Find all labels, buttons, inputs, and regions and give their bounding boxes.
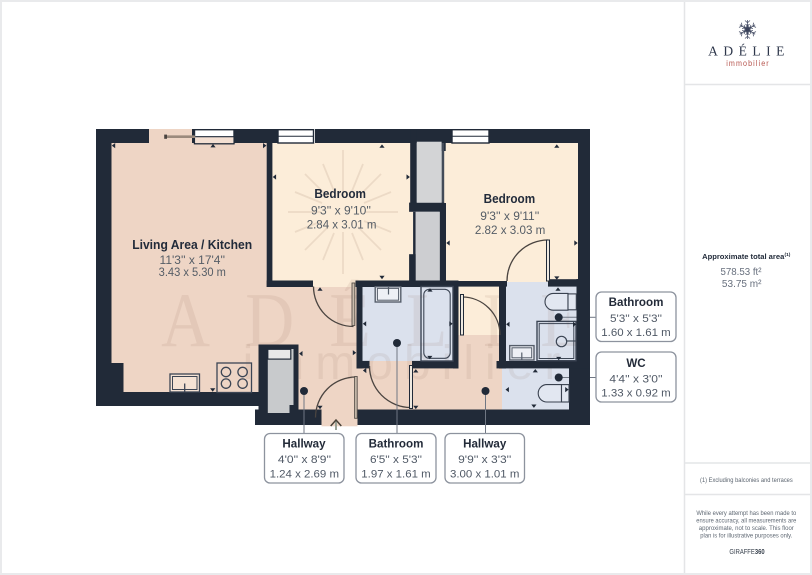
svg-text:Bathroom: Bathroom <box>609 296 664 309</box>
svg-text:3.00 x 1.01 m: 3.00 x 1.01 m <box>450 468 519 480</box>
svg-text:2.82 x 3.03 m: 2.82 x 3.03 m <box>475 224 546 237</box>
svg-text:4'4'' x 3'0'': 4'4'' x 3'0'' <box>609 373 662 385</box>
svg-text:Bedroom: Bedroom <box>314 186 366 201</box>
svg-text:9'3'' x 9'10'': 9'3'' x 9'10'' <box>311 204 371 217</box>
svg-text:GIRAFFE360: GIRAFFE360 <box>729 547 764 556</box>
svg-text:1.33 x 0.92 m: 1.33 x 0.92 m <box>601 388 670 400</box>
svg-text:approximate, not to scale. Thi: approximate, not to scale. This floor <box>699 525 795 532</box>
svg-text:Bedroom: Bedroom <box>484 191 536 206</box>
svg-text:While every attempt has been m: While every attempt has been made to <box>696 510 796 517</box>
svg-text:Hallway: Hallway <box>463 437 507 450</box>
svg-text:5'3'' x 5'3'': 5'3'' x 5'3'' <box>610 313 662 325</box>
svg-text:1.24 x 2.69 m: 1.24 x 2.69 m <box>270 468 339 480</box>
svg-text:WC: WC <box>626 357 646 370</box>
svg-text:3.43 x 5.30 m: 3.43 x 5.30 m <box>159 266 226 279</box>
svg-text:1.60 x 1.61 m: 1.60 x 1.61 m <box>601 327 670 339</box>
svg-text:plan is for illustrative purpo: plan is for illustrative purposes only. <box>700 533 792 540</box>
svg-text:1.97 x 1.61 m: 1.97 x 1.61 m <box>361 468 430 480</box>
svg-text:6'5'' x 5'3'': 6'5'' x 5'3'' <box>370 454 422 466</box>
svg-text:9'3'' x 9'11'': 9'3'' x 9'11'' <box>480 210 539 223</box>
svg-text:ADÉLIE: ADÉLIE <box>708 44 790 59</box>
svg-text:Approximate total area: Approximate total area <box>702 252 785 261</box>
svg-text:Hallway: Hallway <box>282 437 326 450</box>
svg-text:(1): (1) <box>785 252 791 258</box>
svg-text:ensure accuracy, all measureme: ensure accuracy, all measurements are <box>696 518 796 525</box>
svg-text:4'0'' x 8'9'': 4'0'' x 8'9'' <box>278 454 331 466</box>
svg-text:53.75 m²: 53.75 m² <box>722 279 762 290</box>
svg-text:Bathroom: Bathroom <box>369 437 424 450</box>
svg-text:(1) Excluding balconies and te: (1) Excluding balconies and terraces <box>700 477 793 484</box>
svg-text:9'9'' x 3'3'': 9'9'' x 3'3'' <box>458 454 511 466</box>
svg-text:2.84 x 3.01 m: 2.84 x 3.01 m <box>307 218 377 231</box>
svg-text:immobilier: immobilier <box>726 59 770 68</box>
svg-text:578.53 ft²: 578.53 ft² <box>721 267 763 278</box>
svg-text:Living Area / Kitchen: Living Area / Kitchen <box>132 237 252 252</box>
